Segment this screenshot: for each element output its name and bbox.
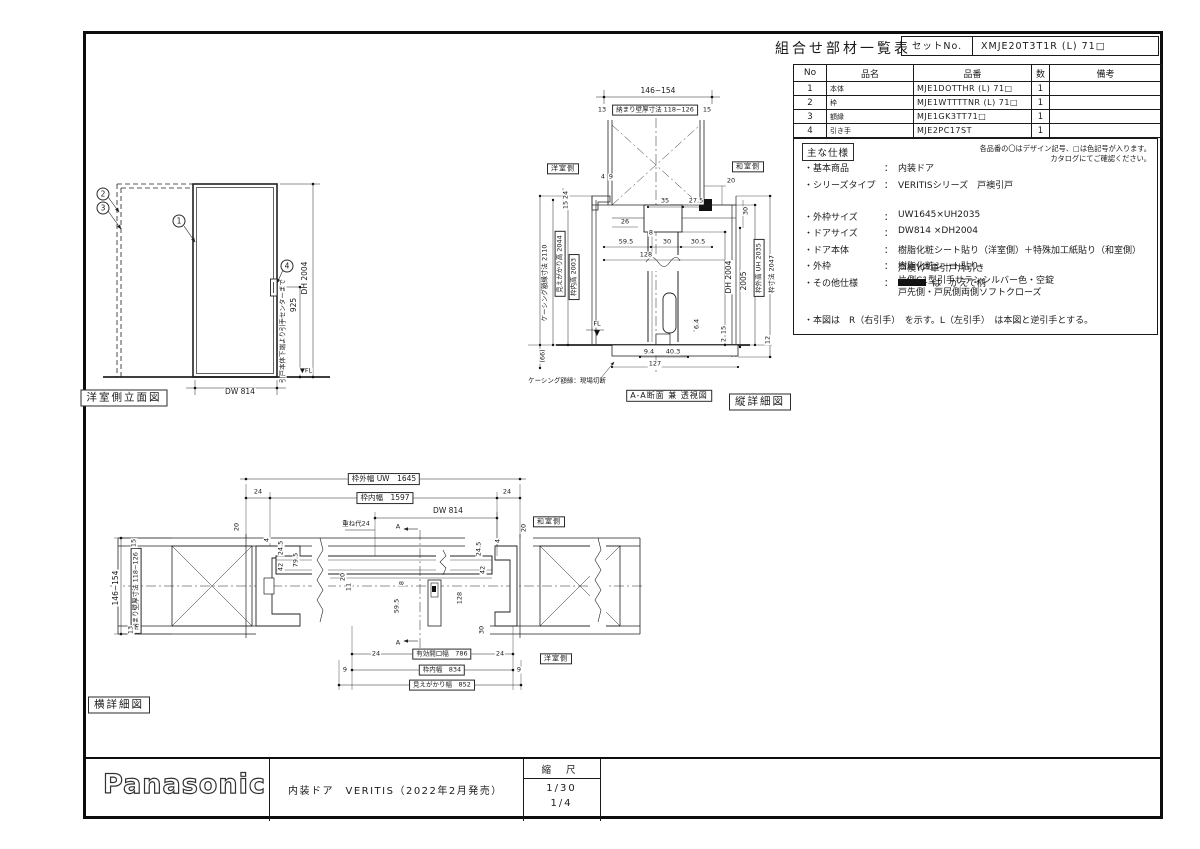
part-no-cell: 4 <box>794 124 827 138</box>
spec-colon: ： <box>884 210 898 223</box>
part-remark-cell <box>1050 124 1162 138</box>
table-row: 4 引き手 MJE2PC17ST 1 <box>794 124 1162 138</box>
spec-label: ・基本商品 <box>804 161 884 174</box>
spec-heading: 主な仕様 <box>802 143 854 161</box>
spec-footnote: ・本図は R（右引手） を示す。L（左引手） は本図と逆引手とする。 <box>804 313 1093 326</box>
scale-value: 1/4 <box>523 798 600 809</box>
scale-value: 1/30 <box>523 783 600 794</box>
spec-other-line: 戸先側・戸尻側両側ソフトクローズ <box>898 288 1054 300</box>
part-qty-cell: 1 <box>1032 124 1050 138</box>
part-number-cell: MJE2PC17ST <box>914 124 1032 138</box>
drawing-description: 内装ドア VERITIS（2022年2月発売） <box>288 782 503 797</box>
table-row: 2 枠 MJE1WTTTTNR (L) 71□ 1 <box>794 96 1162 110</box>
spec-value: 樹脂化粧シート貼り（洋室側）＋特殊加工紙貼り（和室側） <box>898 243 1141 256</box>
part-no-cell: 3 <box>794 110 827 124</box>
title-block-divider <box>600 759 601 821</box>
title-block-divider <box>269 759 270 821</box>
table-row: 3 額縁 MJE1GK3TT71□ 1 <box>794 110 1162 124</box>
column-header: 数 <box>1032 65 1050 82</box>
drawing-sheet-page: 2314DW 814DH 2004925引戸本体下端より引手センターまで▼FL洋… <box>0 0 1200 849</box>
scale-cell: 縮 尺 1/30 1/4 <box>523 759 600 821</box>
part-number-cell: MJE1WTTTTNR (L) 71□ <box>914 96 1032 110</box>
spec-row: ・基本商品 ： 内装ドア <box>804 161 1154 174</box>
spec-box: 主な仕様 各品番の〇はデザイン記号、□は色記号が入ります。 カタログにてご確認く… <box>793 138 1158 335</box>
part-no-cell: 2 <box>794 96 827 110</box>
part-no-cell: 1 <box>794 82 827 96</box>
spec-colon: ： <box>884 226 898 239</box>
spec-label: ・外枠 <box>804 259 884 272</box>
parts-table-title: 組合せ部材一覧表 <box>775 38 911 58</box>
column-header: No <box>794 65 827 82</box>
spec-value: 内装ドア <box>898 161 934 174</box>
spec-colon: ： <box>884 276 898 289</box>
part-name-cell: 本体 <box>827 82 914 96</box>
part-name-cell: 枠 <box>827 96 914 110</box>
spec-colon: ： <box>884 243 898 256</box>
column-header: 備考 <box>1050 65 1162 82</box>
scale-divider <box>523 778 600 779</box>
spec-label: ・ドアサイズ <box>804 226 884 239</box>
part-remark-cell <box>1050 110 1162 124</box>
spec-value: VERITISシリーズ 戸襖引戸 <box>898 178 1013 191</box>
parts-table-header: No品名品番数備考 <box>794 65 1162 82</box>
set-number-value: XMJE20T3T1R (L) 71□ <box>973 36 1159 56</box>
part-number-cell: MJE1DOTTHR (L) 71□ <box>914 82 1032 96</box>
set-number: セットNo. XMJE20T3T1R (L) 71□ <box>901 36 1159 56</box>
spec-label: ・その他仕様 <box>804 276 884 289</box>
spec-row: ・外枠サイズ ： UW1645×UH2035 <box>804 210 1154 223</box>
part-qty-cell: 1 <box>1032 96 1050 110</box>
column-header: 品番 <box>914 65 1032 82</box>
table-row: 1 本体 MJE1DOTTHR (L) 71□ 1 <box>794 82 1162 96</box>
parts-table: No品名品番数備考 1 本体 MJE1DOTTHR (L) 71□ 1 2 枠 … <box>793 64 1162 138</box>
part-name-cell: 額縁 <box>827 110 914 124</box>
spec-colon: ： <box>884 259 898 272</box>
column-header: 品名 <box>827 65 914 82</box>
spec-value: DW814 ×DH2004 <box>898 226 978 239</box>
spec-other-line: 戸襖Y戸車引戸片引き <box>898 264 1054 276</box>
spec-other-line: 片側C1型引手サテンシルバー色・空錠 <box>898 276 1054 288</box>
h-section-linework <box>110 478 644 690</box>
scale-label: 縮 尺 <box>523 762 600 776</box>
part-number-cell: MJE1GK3TT71□ <box>914 110 1032 124</box>
title-block: Panasonic 内装ドア VERITIS（2022年2月発売） 縮 尺 1/… <box>83 757 1163 819</box>
part-qty-cell: 1 <box>1032 110 1050 124</box>
v-section-linework <box>528 90 772 378</box>
spec-row: ・ドアサイズ ： DW814 ×DH2004 <box>804 226 1154 239</box>
part-remark-cell <box>1050 82 1162 96</box>
spec-other-lines: 戸襖Y戸車引戸片引き片側C1型引手サテンシルバー色・空錠戸先側・戸尻側両側ソフト… <box>898 264 1054 300</box>
set-number-label: セットNo. <box>901 36 973 56</box>
panasonic-logo: Panasonic <box>103 769 266 800</box>
spec-colon: ： <box>884 178 898 191</box>
part-name-cell: 引き手 <box>827 124 914 138</box>
spec-label: ・ドア本体 <box>804 243 884 256</box>
elevation-linework <box>103 183 330 395</box>
part-qty-cell: 1 <box>1032 82 1050 96</box>
spec-note-line1: 各品番の〇はデザイン記号、□は色記号が入ります。 <box>901 144 1151 154</box>
spec-label: ・外枠サイズ <box>804 210 884 223</box>
spec-value: UW1645×UH2035 <box>898 210 980 223</box>
spec-label: ・シリーズタイプ <box>804 178 884 191</box>
spec-colon: ： <box>884 161 898 174</box>
part-remark-cell <box>1050 96 1162 110</box>
spec-row: ・ドア本体 ： 樹脂化粧シート貼り（洋室側）＋特殊加工紙貼り（和室側） <box>804 243 1154 256</box>
spec-row: ・シリーズタイプ ： VERITISシリーズ 戸襖引戸 <box>804 178 1154 191</box>
